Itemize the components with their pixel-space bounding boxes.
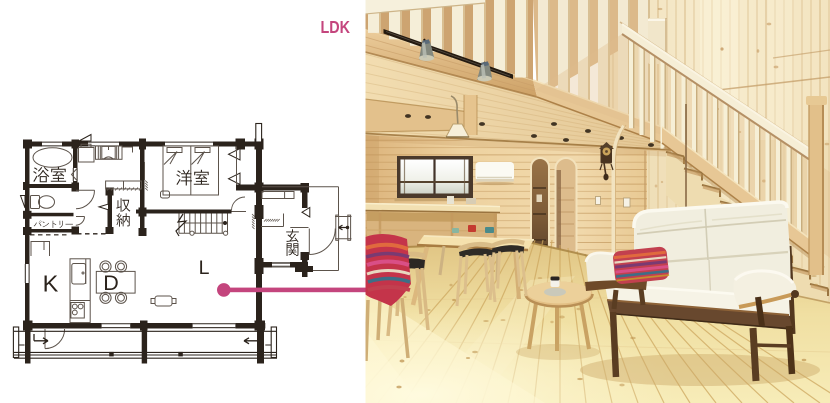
svg-text:LDK: LDK — [321, 17, 351, 37]
svg-text:D: D — [103, 271, 119, 295]
svg-text:L: L — [199, 257, 210, 279]
svg-text:K: K — [43, 271, 59, 297]
